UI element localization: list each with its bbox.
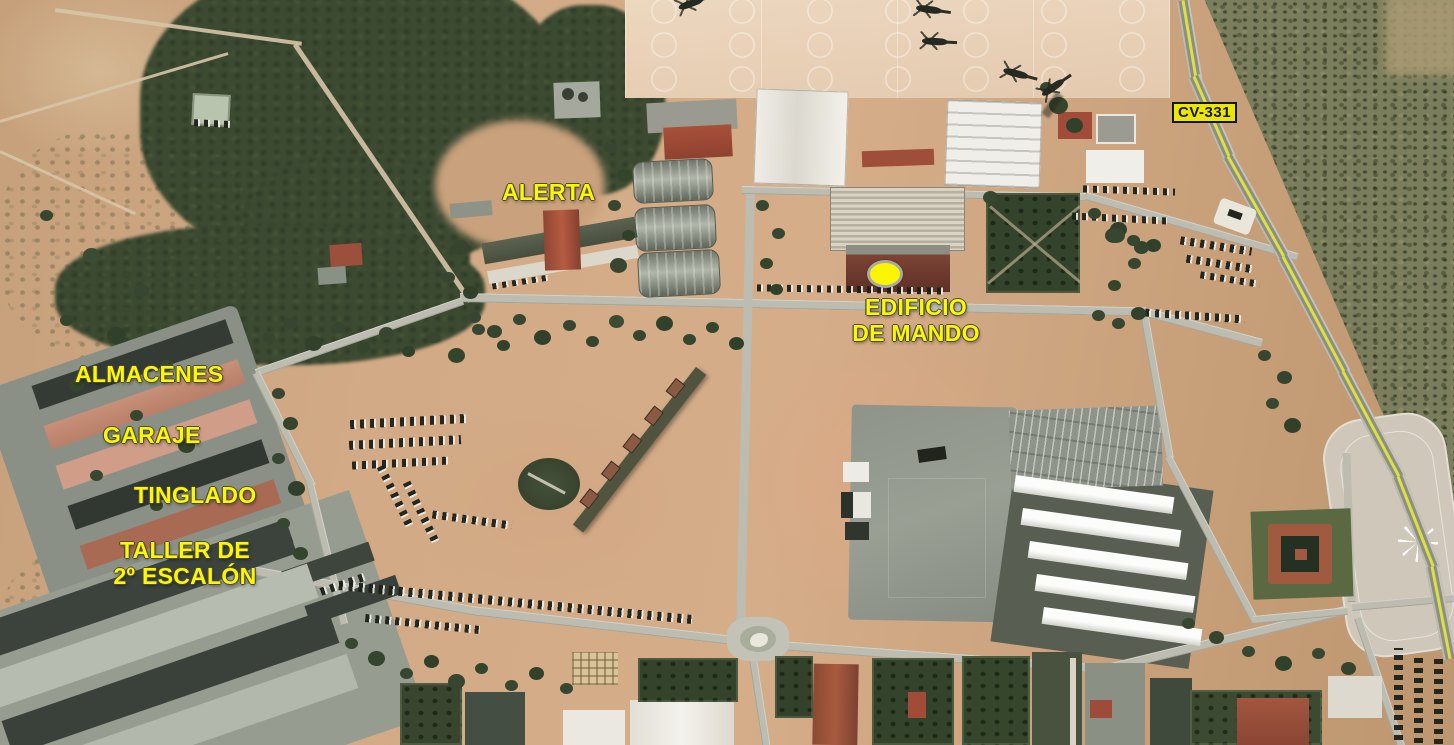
white-building [563, 710, 625, 745]
tree-cluster [468, 312, 481, 323]
parade-ground-marking [888, 478, 986, 598]
trees-block [400, 683, 462, 745]
red-roof-building [1090, 700, 1112, 718]
tree-cluster [272, 388, 285, 399]
road-sign-cv331: CV-331 [1172, 102, 1237, 123]
roundabout-center [748, 631, 768, 647]
ribbed-roof-building [830, 187, 965, 251]
label-line: DE MANDO [826, 320, 1006, 346]
garden-block [962, 656, 1030, 745]
highway-line [1182, 0, 1198, 78]
parked-cars-row [1200, 271, 1260, 287]
white-building [843, 462, 869, 482]
road [749, 658, 771, 745]
pergola-grid [572, 652, 618, 685]
white-building [1328, 676, 1382, 718]
label-alerta: ALERTA [502, 179, 595, 205]
label-line: 2º ESCALÓN [94, 563, 276, 589]
building [1150, 678, 1192, 745]
label-edificio-de-mando: EDIFICIO DE MANDO [826, 294, 1006, 346]
edificio-de-mando-marker [867, 260, 903, 288]
building [1096, 114, 1136, 144]
label-tinglado: TINGLADO [134, 482, 257, 508]
building [465, 692, 525, 745]
label-taller: TALLER DE 2º ESCALÓN [94, 537, 276, 589]
white-building [630, 700, 734, 745]
parked-cars-row [1186, 255, 1254, 274]
red-roof-house [329, 243, 362, 267]
courtyard-center [1295, 549, 1307, 560]
trees-block [775, 656, 813, 718]
parking-lot-cars [1434, 658, 1443, 744]
fuel-tank [562, 88, 574, 100]
quonset-hangar [632, 158, 714, 204]
satellite-map: ALERTA EDIFICIO DE MANDO ALMACENES GARAJ… [0, 0, 1454, 745]
garden-block [638, 658, 738, 702]
label-line: TALLER DE [94, 537, 276, 563]
building [841, 492, 871, 518]
tree-cluster [345, 638, 358, 649]
building [845, 522, 869, 540]
fuel-tank [578, 92, 588, 102]
tree-cluster [604, 142, 617, 153]
label-line: EDIFICIO [826, 294, 1006, 320]
tree-cluster [1092, 310, 1105, 321]
parking-lot-cars [1414, 653, 1423, 743]
light-corner [1385, 0, 1454, 75]
white-hangar [945, 99, 1043, 188]
highway-cv331 [1177, 0, 1203, 79]
red-roof-building [1058, 112, 1092, 139]
label-almacenes: ALMACENES [75, 361, 223, 387]
tree-cluster [40, 210, 53, 221]
tree-cluster [756, 200, 769, 211]
parking-lot-cars [1394, 648, 1403, 740]
red-roof-building [1237, 698, 1309, 745]
road [460, 293, 1144, 316]
tree-cluster [1182, 618, 1195, 629]
red-roof-building [908, 692, 926, 718]
shed [317, 266, 346, 285]
helipad-apron [625, 0, 1170, 98]
walkway [1070, 658, 1076, 745]
white-hangar [753, 88, 848, 186]
red-roof-building [862, 149, 935, 168]
tree-cluster [1258, 350, 1271, 361]
red-roof-building [663, 124, 733, 160]
red-gable-building [812, 664, 858, 745]
white-building [1086, 150, 1144, 183]
red-gable-building [543, 209, 581, 270]
label-garaje: GARAJE [103, 422, 201, 448]
fuel-station [553, 81, 600, 119]
quonset-hangar [637, 249, 721, 298]
helicopter [922, 37, 948, 45]
quonset-hangar [634, 204, 717, 252]
tree-cluster [262, 332, 275, 343]
